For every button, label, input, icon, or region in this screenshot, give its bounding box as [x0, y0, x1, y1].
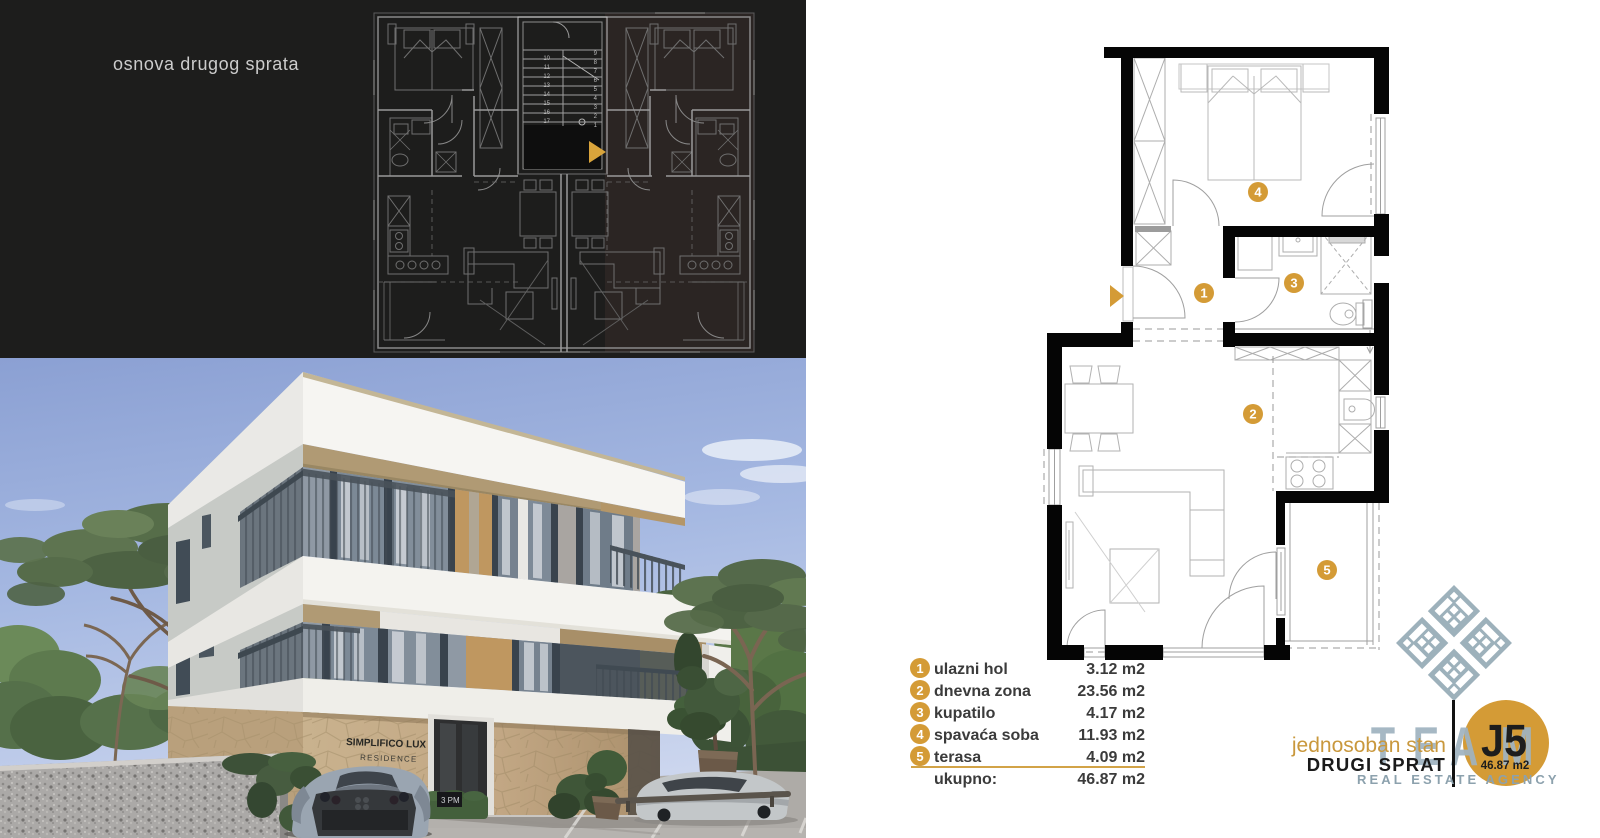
svg-text:dnevna zona: dnevna zona: [934, 683, 1031, 700]
svg-text:1: 1: [1200, 286, 1207, 301]
svg-text:4.17 m2: 4.17 m2: [1086, 705, 1145, 722]
svg-text:4: 4: [916, 727, 924, 742]
svg-text:3.12 m2: 3.12 m2: [1086, 661, 1145, 678]
svg-text:10: 10: [543, 56, 550, 62]
svg-text:2: 2: [1249, 407, 1256, 422]
svg-text:terasa: terasa: [934, 749, 981, 766]
svg-text:kupatilo: kupatilo: [934, 705, 996, 722]
svg-text:spavaća soba: spavaća soba: [934, 727, 1039, 744]
svg-text:5: 5: [1323, 563, 1330, 578]
svg-text:16: 16: [543, 110, 550, 116]
svg-text:12: 12: [543, 74, 550, 80]
svg-text:4.09 m2: 4.09 m2: [1086, 749, 1145, 766]
svg-text:11.93 m2: 11.93 m2: [1078, 727, 1145, 744]
svg-text:46.87 m2: 46.87 m2: [1077, 771, 1145, 788]
svg-text:ulazni hol: ulazni hol: [934, 661, 1008, 678]
svg-text:J5: J5: [1481, 716, 1527, 766]
svg-text:23.56 m2: 23.56 m2: [1077, 683, 1145, 700]
svg-text:2: 2: [916, 683, 923, 698]
svg-text:3: 3: [916, 705, 923, 720]
svg-text:osnova drugog sprata: osnova drugog sprata: [113, 54, 300, 74]
svg-text:15: 15: [543, 101, 550, 107]
svg-text:14: 14: [543, 92, 550, 98]
svg-text:46.87 m2: 46.87 m2: [1481, 760, 1530, 772]
svg-text:3 PM: 3 PM: [441, 796, 460, 805]
svg-text:13: 13: [543, 83, 550, 89]
svg-text:5: 5: [916, 749, 923, 764]
svg-text:ukupno:: ukupno:: [934, 771, 997, 788]
svg-text:1: 1: [916, 661, 923, 676]
svg-text:3: 3: [1290, 276, 1297, 291]
svg-text:17: 17: [543, 119, 550, 125]
svg-text:4: 4: [1254, 185, 1262, 200]
svg-text:REAL ESTATE AGENCY: REAL ESTATE AGENCY: [1357, 772, 1560, 787]
svg-text:11: 11: [544, 65, 551, 71]
